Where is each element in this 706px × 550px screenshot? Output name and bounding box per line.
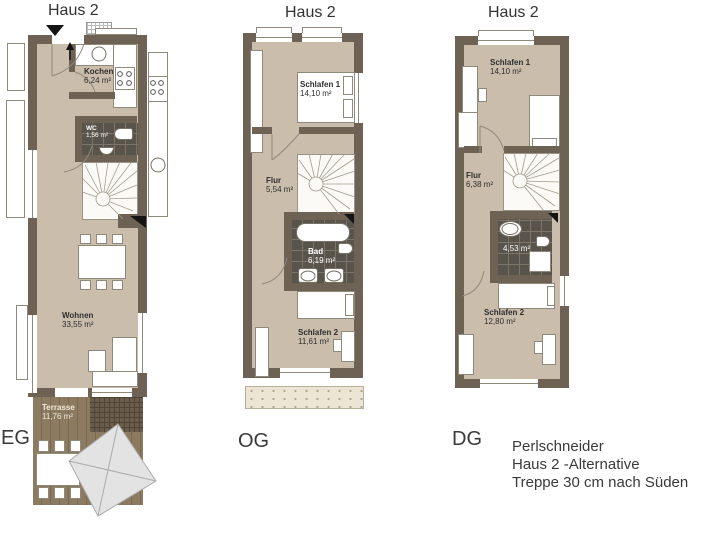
wc-wall	[75, 155, 137, 162]
pillow	[343, 99, 353, 118]
notes-line-1: Perlschneider	[512, 438, 688, 456]
spiral-stair	[503, 153, 560, 211]
room-name: Schlafen 2	[484, 308, 524, 317]
room-label-schlafen1-dg: Schlafen 1 14,10 m²	[490, 58, 530, 76]
chair	[112, 280, 123, 290]
notes-line-2: Haus 2 -Alternative	[512, 456, 688, 474]
sink	[499, 221, 522, 237]
neighbor-window	[6, 100, 25, 218]
og-window-top	[256, 33, 292, 42]
room-label-schlafen1-og: Schlafen 1 14,10 m²	[300, 80, 340, 98]
plan-title-og: Haus 2	[285, 4, 336, 22]
room-name: Flur	[466, 171, 493, 180]
eg-window-bottom	[92, 388, 132, 397]
chair	[112, 234, 123, 244]
partition-wall	[299, 127, 363, 134]
spiral-stair	[297, 154, 355, 214]
floor-tag-eg: EG	[1, 427, 30, 450]
room-label-schlafen2-dg: Schlafen 2 12,80 m²	[484, 308, 524, 326]
og-window-top	[302, 33, 342, 42]
plan-notes: Perlschneider Haus 2 -Alternative Treppe…	[512, 438, 688, 492]
bath-wall	[490, 211, 498, 283]
room-name: WC	[86, 125, 108, 132]
wc-wall	[75, 116, 137, 123]
neighbor-window	[16, 305, 28, 380]
floor-tag-og: OG	[238, 430, 269, 453]
partition-wall	[69, 44, 75, 72]
window-sill	[95, 28, 137, 35]
partition-wall	[464, 146, 482, 153]
dg-window-bottom	[480, 379, 538, 388]
eg-terrace-door-opening	[55, 388, 88, 397]
room-label-bad-dg: 4,53 m²	[503, 244, 530, 253]
room-area: 6,38 m²	[466, 180, 493, 189]
chair	[80, 280, 91, 290]
neighbor-stove	[148, 76, 168, 102]
room-area: 14,10 m²	[490, 67, 530, 76]
partition-wall	[69, 92, 115, 99]
terrace-table	[36, 453, 80, 486]
bath-wall	[284, 212, 292, 291]
wardrobe	[458, 334, 474, 375]
room-label-bad-og: Bad 6,19 m²	[308, 247, 335, 265]
bath-wall	[490, 275, 552, 283]
room-area: 33,55 m²	[62, 320, 94, 329]
room-area: 5,54 m²	[266, 185, 293, 194]
stair-corner-block	[118, 214, 147, 228]
room-area: 14,10 m²	[300, 89, 340, 98]
room-name: Kochen	[84, 67, 113, 76]
og-window-right	[354, 73, 363, 123]
plan-title-eg: Haus 2	[48, 2, 99, 20]
partition-wall	[252, 127, 272, 134]
room-name: Bad	[308, 247, 335, 256]
eg-window-right	[138, 313, 147, 373]
eg-window-left	[28, 150, 37, 218]
partition-wall	[504, 146, 560, 153]
room-area: 11,76 m²	[42, 412, 75, 421]
chair	[80, 234, 91, 244]
bath-wall	[284, 212, 354, 220]
terrace-chair	[54, 487, 65, 499]
shower	[529, 251, 551, 272]
room-area: 4,53 m²	[503, 244, 530, 253]
room-label-schlafen2-og: Schlafen 2 11,61 m²	[298, 328, 338, 346]
sofa	[92, 371, 138, 387]
room-area: 1,56 m²	[86, 132, 108, 139]
eg-entrance-opening	[52, 35, 84, 44]
desk	[341, 331, 355, 362]
pillow	[547, 286, 555, 306]
og-window-bottom	[280, 368, 330, 378]
wardrobe	[458, 112, 478, 148]
chair	[534, 341, 543, 354]
coffee-table	[88, 350, 106, 372]
room-area: 6,24 m²	[84, 76, 113, 85]
chair	[96, 234, 107, 244]
dining-table	[78, 245, 126, 279]
floor-tag-dg: DG	[452, 428, 482, 451]
toilet	[536, 236, 550, 247]
chair	[478, 88, 487, 102]
room-area: 12,80 m²	[484, 317, 524, 326]
terrace-chair	[38, 487, 49, 499]
room-area: 6,19 m²	[308, 256, 335, 265]
terrace-chair	[54, 440, 65, 452]
terrace-chair	[70, 487, 81, 499]
room-name: Wohnen	[62, 311, 94, 320]
sink	[298, 268, 318, 283]
dg-window-top	[478, 36, 534, 45]
room-name: Schlafen 1	[490, 58, 530, 67]
wardrobe	[250, 50, 263, 153]
toilet	[114, 128, 133, 140]
room-name: Schlafen 2	[298, 328, 338, 337]
room-label-flur-dg: Flur 6,38 m²	[466, 171, 493, 189]
pillow	[345, 294, 354, 316]
room-name: Terrasse	[42, 403, 75, 412]
bathtub	[296, 223, 350, 242]
wardrobe	[255, 327, 269, 377]
spiral-stair	[82, 162, 138, 220]
chair	[96, 280, 107, 290]
pillow	[343, 76, 353, 95]
room-label-kochen: Kochen 6,24 m²	[84, 67, 113, 85]
room-name: Schlafen 1	[300, 80, 340, 89]
room-label-terrasse: Terrasse 11,76 m²	[42, 403, 75, 421]
stove	[115, 67, 135, 90]
notes-line-3: Treppe 30 cm nach Süden	[512, 474, 688, 492]
bath-wall	[490, 211, 552, 219]
terrace-chair	[70, 440, 81, 452]
bath-wall	[284, 283, 354, 291]
plan-title-dg: Haus 2	[488, 4, 539, 22]
dg-window-right	[560, 276, 569, 306]
room-label-wc: WC 1,56 m²	[86, 125, 108, 140]
balcony-area	[245, 386, 364, 409]
desk	[542, 334, 556, 365]
terrace-hatch	[90, 397, 143, 432]
room-name: Flur	[266, 176, 293, 185]
neighbor-window	[7, 43, 25, 91]
sink	[324, 268, 344, 283]
floor-plan-sheet: Haus 2 Haus 2 Haus 2 Kochen 6,24 m² WC 1…	[0, 0, 706, 550]
eg-window-left	[28, 315, 37, 393]
room-label-wohnen: Wohnen 33,55 m²	[62, 311, 94, 329]
room-area: 11,61 m²	[298, 337, 338, 346]
toilet	[338, 243, 353, 254]
terrace-chair	[38, 440, 49, 452]
room-label-flur-og: Flur 5,54 m²	[266, 176, 293, 194]
